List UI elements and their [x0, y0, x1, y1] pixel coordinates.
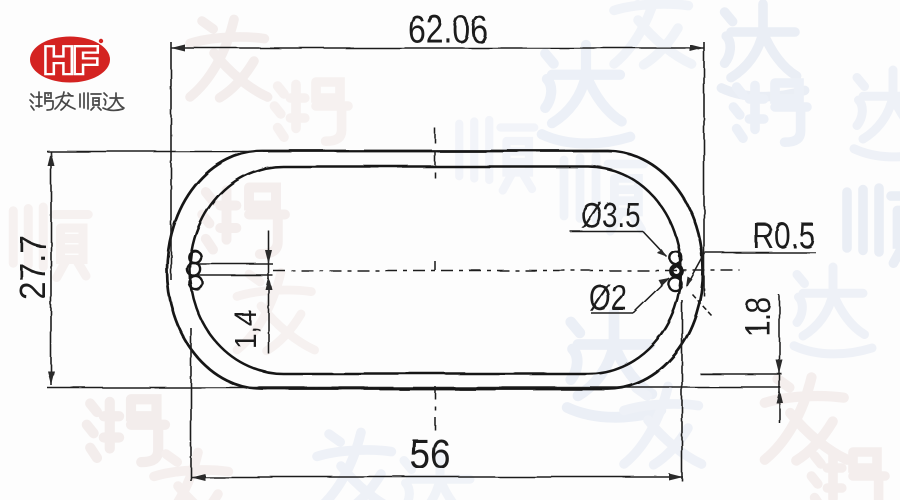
svg-text:R0.5: R0.5	[753, 215, 816, 256]
svg-text:27.7: 27.7	[12, 235, 53, 300]
svg-text:62.06: 62.06	[408, 9, 488, 52]
svg-text:1.8: 1.8	[739, 297, 778, 337]
svg-text:Ø2: Ø2	[589, 277, 627, 318]
svg-text:Ø3.5: Ø3.5	[581, 197, 641, 236]
svg-text:1,4: 1,4	[228, 310, 263, 349]
svg-text:56: 56	[410, 430, 451, 477]
svg-text:HF: HF	[44, 40, 98, 81]
